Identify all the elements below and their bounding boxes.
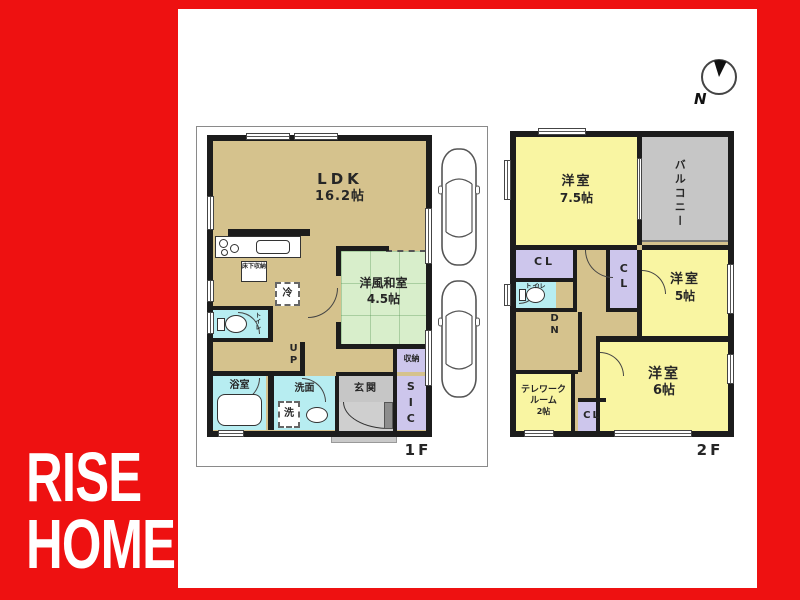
wall xyxy=(512,370,578,374)
car-icon xyxy=(438,146,480,268)
window xyxy=(207,280,214,302)
underfloor-storage-label: 床下収納 xyxy=(242,263,266,271)
window xyxy=(524,430,554,437)
kitchen-sink-icon xyxy=(256,240,290,254)
storage-1f-label: 収納 xyxy=(397,354,426,364)
wall xyxy=(336,372,397,376)
telework-label-1: テレワーク xyxy=(516,385,571,397)
stove-icon xyxy=(230,244,239,253)
entrance-label: 玄関 xyxy=(339,382,393,395)
window xyxy=(218,430,244,437)
wall xyxy=(213,306,273,310)
wall xyxy=(642,245,728,250)
wall xyxy=(573,250,577,308)
toilet-icon xyxy=(225,315,247,333)
closet-a-label: CL xyxy=(516,255,573,269)
window xyxy=(538,128,586,135)
wall xyxy=(213,338,273,342)
window xyxy=(246,133,290,140)
room-75-size-label: 7.5帖 xyxy=(516,191,637,207)
brand-line-2: HOME xyxy=(26,511,175,580)
wall xyxy=(596,336,728,342)
sic-label: SIC xyxy=(403,380,417,428)
balcony-label: バルコニー xyxy=(672,152,686,236)
laundry-label: 洗 xyxy=(279,407,299,420)
stove-icon xyxy=(219,239,228,248)
closet-c-label: CL xyxy=(578,409,606,422)
wall xyxy=(341,246,389,251)
closet-b-label: CL xyxy=(616,262,630,292)
washitsu-size-label: 4.5帖 xyxy=(341,292,426,308)
window xyxy=(504,284,511,306)
window xyxy=(504,160,511,200)
washitsu-label: 洋風和室 xyxy=(341,276,426,292)
telework-label-2: ルーム xyxy=(516,396,571,408)
room-6-label: 洋室 xyxy=(600,365,728,383)
window xyxy=(207,196,214,230)
bath-label: 浴室 xyxy=(213,379,266,392)
stairs-up-label: UP xyxy=(287,343,300,367)
floor-1f-label: 1F xyxy=(398,441,438,461)
wall xyxy=(268,306,273,342)
washroom-label: 洗面 xyxy=(274,382,335,395)
window xyxy=(727,264,734,314)
room-6-size-label: 6帖 xyxy=(600,383,728,400)
advertisement-canvas: RISE HOME N xyxy=(0,0,800,600)
wall xyxy=(336,344,426,349)
car-icon xyxy=(438,278,480,400)
fridge-label: 冷 xyxy=(275,287,300,300)
room-5-size-label: 5帖 xyxy=(642,289,728,305)
room-75-label: 洋室 xyxy=(516,174,637,191)
sink-icon xyxy=(306,407,328,423)
toilet-1f-label: トイレ xyxy=(253,312,261,330)
window xyxy=(294,133,338,140)
toilet-icon xyxy=(519,289,526,301)
wall xyxy=(606,308,637,312)
bathtub-icon xyxy=(217,394,262,426)
stairs-down-label: DN xyxy=(548,313,561,337)
wall xyxy=(578,312,582,372)
window xyxy=(207,312,214,334)
window xyxy=(425,330,432,386)
wall xyxy=(300,342,305,376)
wall xyxy=(213,371,305,376)
wall xyxy=(228,229,310,236)
compass-icon: N xyxy=(692,52,744,114)
toilet-icon xyxy=(217,318,225,331)
brand-line-1: RISE xyxy=(26,444,141,513)
room-5-label: 洋室 xyxy=(642,272,728,289)
toilet-2f-label: トイレ xyxy=(516,283,556,291)
compass-north-label: N xyxy=(694,90,707,110)
ldk-label: LDK xyxy=(280,170,400,190)
window xyxy=(614,430,692,437)
telework-label-3: 2帖 xyxy=(516,407,571,417)
entrance-door-leaf xyxy=(384,402,393,429)
wall xyxy=(516,308,577,312)
stove-icon xyxy=(221,249,228,256)
window xyxy=(727,354,734,384)
floor-2f-label: 2F xyxy=(690,441,730,461)
wall xyxy=(516,278,573,282)
window xyxy=(425,208,432,264)
wall xyxy=(571,374,575,431)
ldk-size-label: 16.2帖 xyxy=(280,189,400,206)
window xyxy=(637,158,642,220)
